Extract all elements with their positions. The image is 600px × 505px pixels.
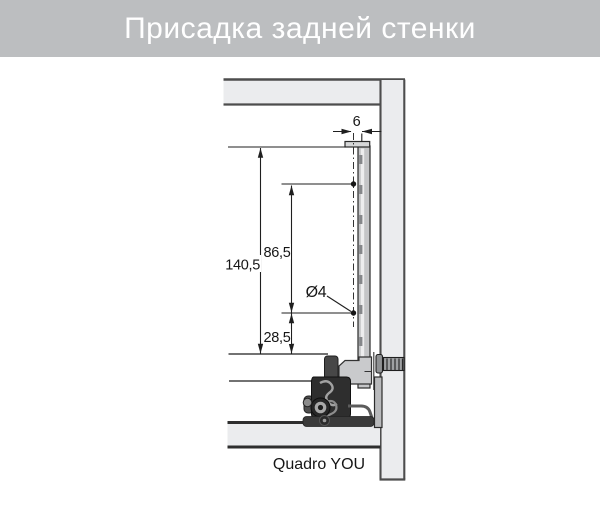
lower-drill-hole bbox=[351, 310, 356, 315]
page-title: Присадка задней стенки bbox=[124, 0, 476, 57]
hole-diameter-label: Ø4 bbox=[306, 284, 327, 301]
upper-drill-hole bbox=[351, 181, 356, 186]
rail-bottom-bar bbox=[303, 417, 374, 427]
dimension-labels: 140,5 86,5 28,5 6 Ø4 bbox=[225, 114, 360, 346]
dim-label-140-5: 140,5 bbox=[225, 258, 260, 274]
profile-top-cap bbox=[345, 142, 370, 148]
back-wall-drilling-diagram: 140,5 86,5 28,5 6 Ø4 Quadro YOU bbox=[0, 57, 600, 500]
cabinet-top-panel bbox=[224, 80, 406, 106]
header-bar: Присадка задней стенки bbox=[0, 0, 600, 57]
dim-label-86-5: 86,5 bbox=[263, 245, 290, 261]
cabinet-side-panel bbox=[380, 80, 406, 480]
side-bracket bbox=[375, 377, 383, 428]
dimension-arrowheads bbox=[258, 129, 372, 354]
dim-label-28-5: 28,5 bbox=[263, 330, 290, 346]
dim-label-6: 6 bbox=[353, 114, 361, 130]
drawer-back-profile bbox=[345, 142, 370, 389]
mounting-screw bbox=[376, 355, 404, 374]
hole-diameter-leader bbox=[327, 296, 351, 312]
side-knob bbox=[303, 398, 312, 407]
technical-drawing-area: 140,5 86,5 28,5 6 Ø4 Quadro YOU bbox=[0, 57, 600, 500]
caption-quadro-you: Quadro YOU bbox=[273, 456, 365, 473]
